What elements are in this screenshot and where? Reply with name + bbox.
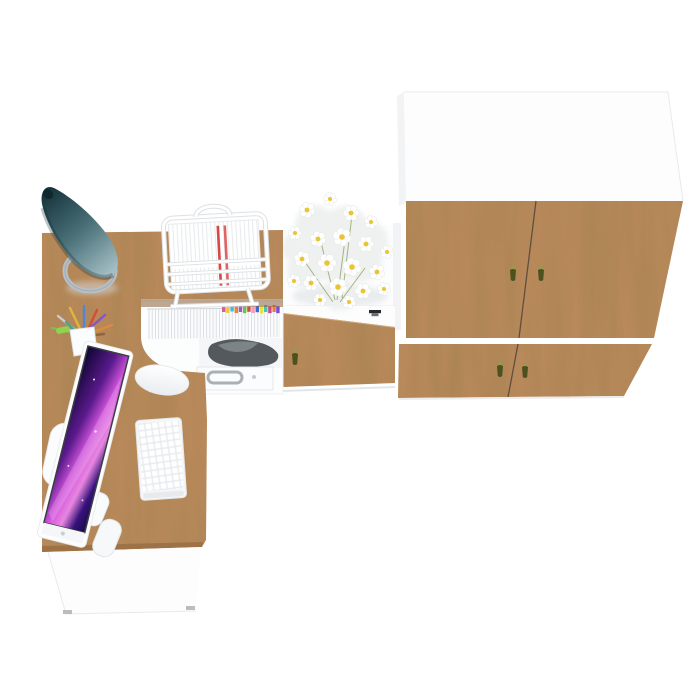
drawer-knob-icon: [252, 375, 256, 379]
daisy-flower: [343, 206, 359, 221]
desk-foot: [63, 610, 72, 614]
wardrobe: [397, 92, 683, 399]
daisy-flower: [313, 294, 326, 306]
mid-cabinet-base-shadow: [283, 387, 395, 391]
desk-foot: [186, 606, 195, 610]
desk-base-panel: [48, 547, 201, 614]
daisy-flower: [303, 276, 319, 291]
wardrobe-upper-doors: [406, 201, 683, 338]
product-render-canvas: [0, 0, 700, 700]
wardrobe-gap: [406, 338, 654, 344]
daisy-flower: [318, 254, 337, 271]
daisy-flower: [358, 237, 374, 252]
wardrobe-top: [404, 92, 683, 201]
hutch-drawer: [197, 367, 273, 390]
daisy-flower: [288, 227, 301, 239]
daisy-flower: [355, 284, 371, 299]
daisy-flower: [324, 192, 337, 205]
keyboard-keys: [138, 421, 184, 492]
keyboard: [135, 417, 186, 500]
furniture-scene: [0, 0, 700, 700]
